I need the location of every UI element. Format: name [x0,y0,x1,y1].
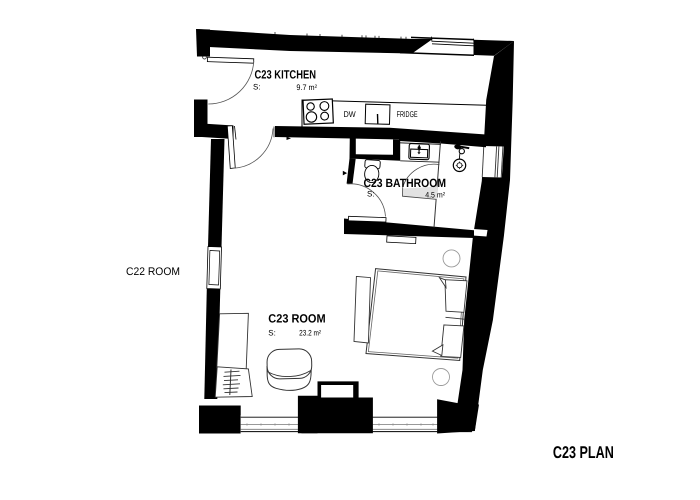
svg-text:S:: S: [367,190,375,199]
svg-text:C23 KITCHEN: C23 KITCHEN [255,68,317,82]
svg-text:4.5 m²: 4.5 m² [425,191,445,200]
svg-text:23.2 m²: 23.2 m² [299,329,321,338]
svg-text:S:: S: [253,83,261,92]
svg-text:C23 ROOM: C23 ROOM [268,312,325,326]
svg-text:C23 BATHROOM: C23 BATHROOM [364,176,447,190]
svg-text:C22 ROOM: C22 ROOM [126,266,180,278]
svg-text:S:: S: [268,329,276,338]
svg-text:C23 PLAN: C23 PLAN [553,443,614,462]
svg-text:DW: DW [344,109,356,119]
svg-text:9.7 m²: 9.7 m² [296,83,317,92]
svg-text:FRIDGE: FRIDGE [397,109,418,119]
